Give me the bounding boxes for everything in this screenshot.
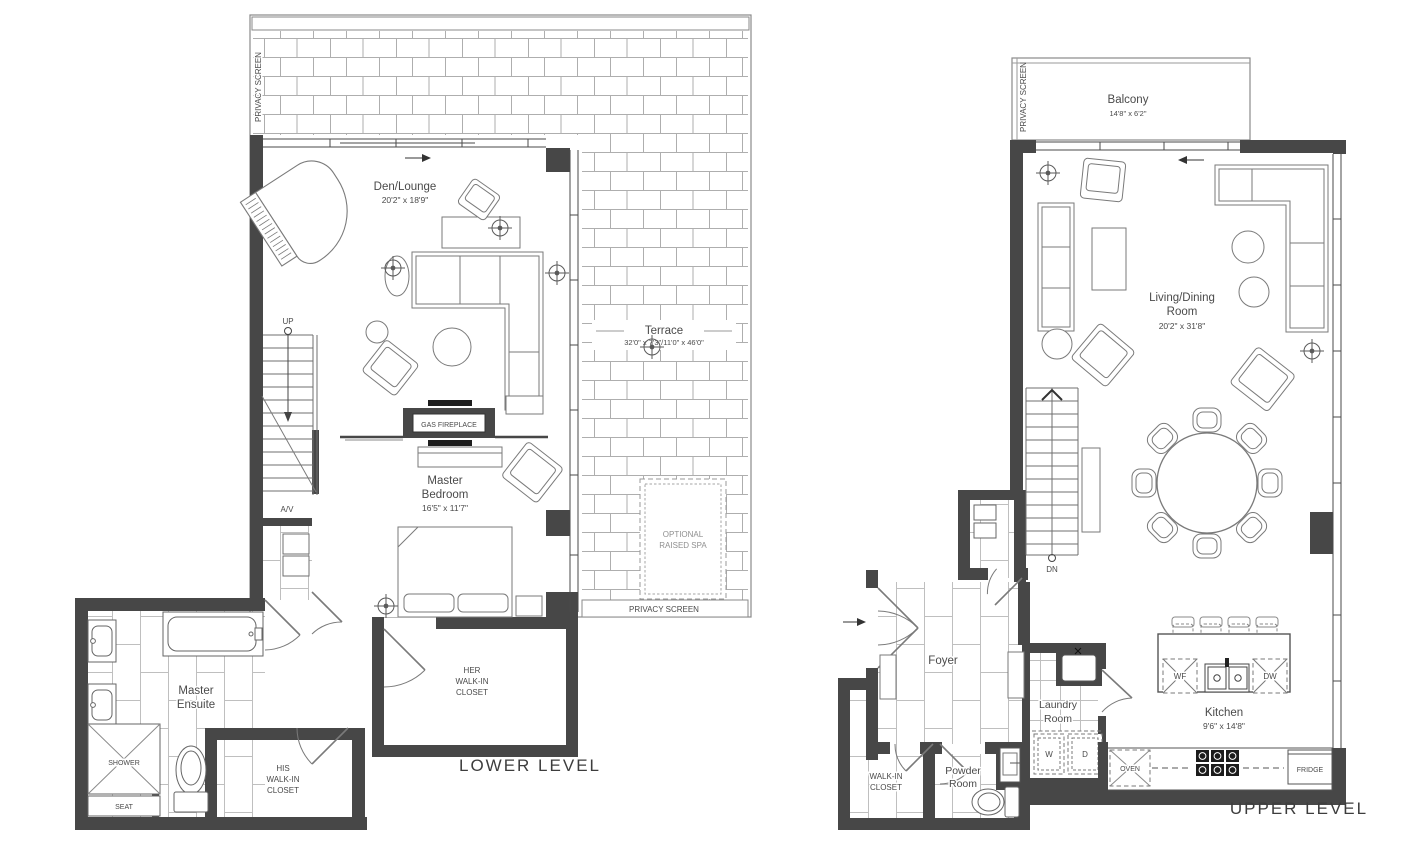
den-label: Den/Lounge: [374, 181, 437, 193]
kitchen-label: Kitchen: [1205, 707, 1243, 719]
laundry-room-label-2: Room: [1044, 713, 1072, 725]
foyer-cabinet-right: [1008, 652, 1024, 698]
fireplace-bench: [418, 447, 502, 467]
coffee-table: [1092, 228, 1126, 290]
entry-arrow: [843, 618, 866, 626]
dining-table: [1132, 408, 1282, 558]
up-label: UP: [282, 317, 293, 326]
den-top-windows: [263, 139, 546, 147]
her-closet-label-2: WALK-IN: [455, 677, 488, 686]
laundry-room-label-1: Laundry: [1039, 699, 1078, 711]
pouf: [1239, 277, 1269, 307]
shower-label: SHOWER: [108, 760, 140, 767]
walk-in-closet-label-2: CLOSET: [870, 783, 902, 792]
balcony-area: PRIVACY SCREEN Balcony 14'8" x 6'2": [1012, 58, 1250, 140]
living-dining-label-1: Living/Dining: [1149, 292, 1215, 304]
powder-room-label-2: Room: [949, 778, 977, 790]
upper-right-windows: [1333, 154, 1341, 748]
toilet-ensuite: [174, 746, 208, 812]
master-ensuite-label-2: Ensuite: [177, 699, 215, 711]
powder-room-label-1: Powder: [945, 765, 981, 777]
washer-label: W: [1045, 750, 1053, 759]
balcony-privacy-label: PRIVACY SCREEN: [1019, 62, 1028, 132]
bed: [398, 527, 512, 617]
foyer-cabinet-left: [880, 655, 896, 699]
toilet-powder: [972, 787, 1019, 817]
terrace-dims: 32'0" x 7'3"/11'0" x 46'0": [624, 338, 704, 347]
den-right-windows: [570, 150, 578, 612]
kitchen-dims: 9'6" x 14'8": [1203, 721, 1245, 731]
dw-label: DW: [1263, 672, 1277, 681]
lower-level-title: LOWER LEVEL: [459, 756, 601, 775]
upper-top-windows: [1036, 142, 1240, 150]
master-bedroom-label-2: Bedroom: [422, 489, 469, 501]
upper-level-title: UPPER LEVEL: [1230, 799, 1368, 818]
his-closet-label-1: HIS: [276, 764, 289, 773]
lower-level-plan: PRIVACY SCREEN PRIVACY SCREEN Terrace 32…: [75, 15, 751, 830]
master-bedroom-label-1: Master: [427, 475, 462, 487]
spa-label-2: RAISED SPA: [659, 541, 707, 550]
den-dims: 20'2" x 18'9": [382, 195, 429, 205]
her-closet-label-3: CLOSET: [456, 688, 488, 697]
pouf: [1232, 231, 1264, 263]
console-table: [442, 217, 520, 248]
sofa-left: [1038, 203, 1074, 331]
powder-sink: [996, 742, 1024, 790]
fridge-label: FRIDGE: [1297, 767, 1324, 774]
foyer-label: Foyer: [928, 655, 958, 667]
laundry-sink: [1056, 648, 1102, 686]
privacy-screen-bottom-label: PRIVACY SCREEN: [629, 605, 699, 614]
his-closet-label-3: CLOSET: [267, 786, 299, 795]
oval-chair: [385, 256, 409, 296]
optional-raised-spa: OPTIONAL RAISED SPA: [640, 479, 726, 599]
oven-label: OVEN: [1120, 766, 1140, 773]
master-ensuite-label-1: Master: [178, 685, 213, 697]
coffee-table-round: [433, 328, 471, 366]
kitchen-counter: OVEN FRIDGE: [1098, 742, 1332, 792]
armchair-living: [1080, 158, 1126, 202]
balcony-label: Balcony: [1108, 94, 1149, 106]
av-label: A/V: [281, 505, 295, 514]
dn-label: DN: [1046, 565, 1058, 574]
side-table-round: [366, 321, 388, 343]
master-bedroom-dims: 16'5" x 11'7": [422, 503, 468, 513]
nightstand: [516, 596, 542, 616]
floor-plan-drawing: PRIVACY SCREEN PRIVACY SCREEN Terrace 32…: [0, 0, 1414, 844]
her-closet-floor: [384, 629, 566, 745]
living-dining-label-2: Room: [1167, 306, 1198, 318]
terrace-label: Terrace: [645, 325, 683, 337]
her-closet-label-1: HER: [464, 666, 481, 675]
spa-label-1: OPTIONAL: [663, 530, 704, 539]
hallway-floor: [262, 598, 372, 728]
shower: [88, 724, 160, 816]
upper-level-plan: PRIVACY SCREEN Balcony 14'8" x 6'2": [838, 58, 1368, 830]
wf-label: WF: [1174, 672, 1187, 681]
bathtub: [163, 612, 263, 656]
privacy-screen-left-label: PRIVACY SCREEN: [254, 52, 263, 122]
stair-console: [1082, 448, 1100, 532]
living-dining-dims: 20'2" x 31'8": [1159, 321, 1206, 331]
gas-fireplace-label: GAS FIREPLACE: [421, 422, 477, 429]
floor-plan-canvas: PRIVACY SCREEN PRIVACY SCREEN Terrace 32…: [0, 0, 1414, 844]
fridge: FRIDGE: [1288, 750, 1332, 784]
his-closet-label-2: WALK-IN: [266, 775, 299, 784]
privacy-screen-top-bar: [252, 17, 749, 30]
dryer-label: D: [1082, 750, 1088, 759]
seat-label: SEAT: [115, 804, 133, 811]
pouf: [1042, 329, 1072, 359]
balcony-dims: 14'8" x 6'2": [1110, 109, 1147, 118]
walk-in-closet-label-1: WALK-IN: [869, 772, 902, 781]
